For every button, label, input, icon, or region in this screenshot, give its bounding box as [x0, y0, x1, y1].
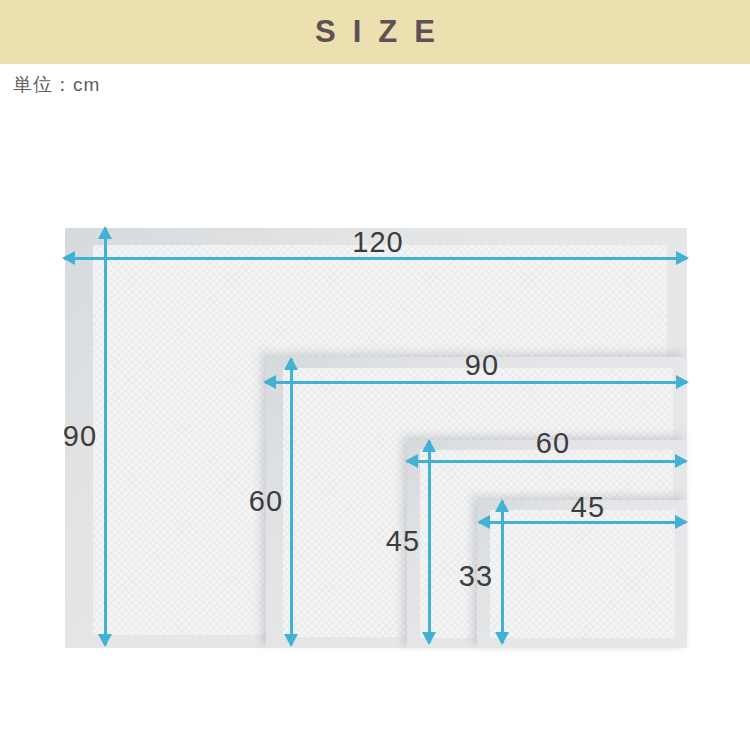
height-label-33: 33: [459, 560, 493, 593]
width-label-120: 120: [352, 226, 403, 259]
width-label-90: 90: [465, 349, 499, 382]
size-diagram-page: SIZE 単位：cm 120 90 90 60 60 45 45 33: [0, 0, 750, 751]
pad-45x33-surface: [490, 510, 675, 638]
banner-title: SIZE: [298, 14, 452, 50]
width-label-45: 45: [571, 491, 605, 524]
height-arrow-45-icon: [428, 441, 431, 643]
unit-label: 単位：cm: [13, 72, 100, 98]
height-arrow-90-icon: [104, 228, 107, 645]
width-arrow-60-icon: [407, 460, 686, 463]
height-label-45: 45: [386, 525, 420, 558]
height-label-60: 60: [249, 485, 283, 518]
size-banner: SIZE: [0, 0, 750, 64]
height-arrow-60-icon: [290, 359, 293, 645]
height-arrow-33-icon: [501, 501, 504, 643]
width-label-60: 60: [536, 427, 570, 460]
height-label-90: 90: [63, 420, 97, 453]
